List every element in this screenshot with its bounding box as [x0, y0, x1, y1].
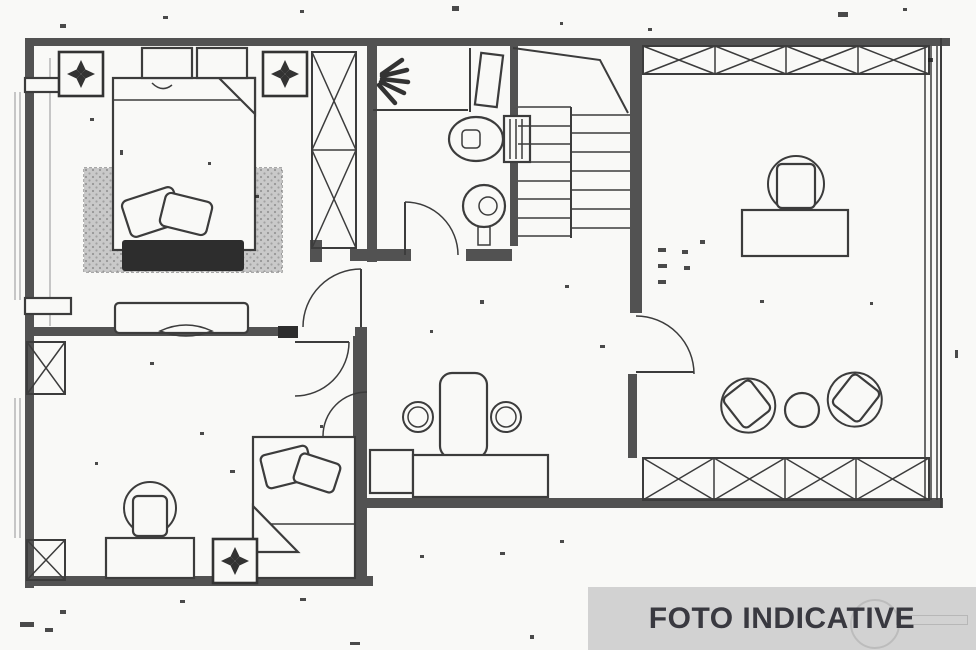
desk: [106, 538, 194, 578]
toilet-icon: [449, 116, 530, 162]
stool: [491, 402, 521, 432]
side-table: [785, 393, 819, 427]
floor-plan-drawing: [0, 0, 976, 650]
window-pane: [197, 48, 247, 78]
armchair: [817, 362, 893, 438]
bedroom1-door: [303, 269, 361, 327]
hall-table: [440, 373, 487, 458]
desk-chair: [768, 156, 824, 212]
desk-chair: [124, 482, 176, 536]
shower-icon: [379, 60, 408, 103]
counter: [413, 455, 548, 497]
window-band-top: [643, 46, 929, 74]
headboard: [122, 240, 244, 271]
cabinet: [370, 450, 413, 493]
window-pane: [142, 48, 192, 78]
stair-annotation-marks: [658, 240, 705, 284]
bedroom-2: [27, 342, 355, 583]
ceiling-light-icon: [213, 539, 257, 583]
living-room: [636, 46, 929, 500]
stool: [403, 402, 433, 432]
sink-icon: [463, 185, 505, 245]
photo-indicative-label: FOTO INDICATIVE: [649, 602, 915, 636]
ceiling-light-icon: [59, 52, 103, 96]
shower-door: [475, 53, 503, 107]
wardrobe: [312, 52, 356, 248]
armchair: [710, 368, 786, 444]
dresser: [115, 303, 248, 333]
stair-treads-left: [518, 107, 571, 236]
desk: [742, 210, 848, 256]
window-band-bottom: [643, 458, 929, 500]
bedroom-1: [59, 48, 356, 336]
stair-treads-right: [571, 115, 630, 228]
photo-indicative-band: FOTO INDICATIVE: [588, 587, 976, 650]
floor-plan-screenshot: FOTO INDICATIVE: [0, 0, 976, 650]
bedroom2-door: [295, 342, 349, 396]
bathroom: [373, 48, 530, 255]
bathroom-door: [405, 202, 458, 255]
ceiling-light-icon: [263, 52, 307, 96]
living-room-door: [636, 316, 694, 374]
